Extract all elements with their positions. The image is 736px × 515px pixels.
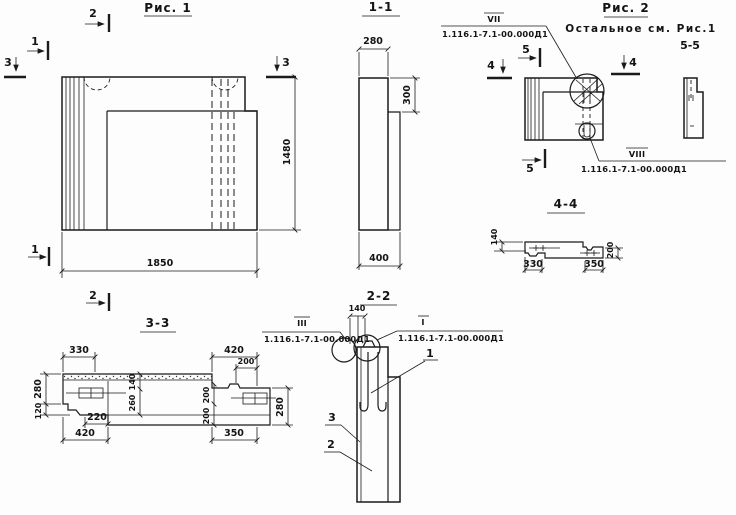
cut-marker-5-bottom: 5 xyxy=(526,162,534,175)
sec44-anchors xyxy=(533,245,597,256)
callout-vii-doc: 1.116.1-7.1-00.000Д1 xyxy=(442,29,548,39)
sec33-dim-bottom-right: 350 xyxy=(224,428,244,439)
sec44-dim-bottom-left: 330 xyxy=(523,259,543,270)
sec22-callout-i: I 1.116.1-7.1-00.000Д1 xyxy=(377,316,504,343)
sec11-rib xyxy=(388,112,400,230)
sec11-dimensions: 280 300 400 xyxy=(359,36,420,270)
sec22-callout-iii: III 1.116.1-7.1-00.000Д1 xyxy=(262,317,370,344)
sec33-dim-bottom-left: 420 xyxy=(75,428,95,439)
sec11-dim-step: 300 xyxy=(402,85,413,105)
sec22-title: 2-2 xyxy=(367,289,392,303)
part-label-1: 1 xyxy=(426,347,434,360)
callout-viii-doc: 1.116.1-7.1-00.000Д1 xyxy=(581,164,687,174)
section-2-2: 2-2 140 III 1.116.1-7.1-00.000Д1 I 1.116… xyxy=(262,289,504,502)
sec22-body xyxy=(332,335,400,502)
detail-circle-vii xyxy=(570,74,604,108)
section-4-4: 4-4 140 200 330 350 xyxy=(490,197,623,273)
part-label-2: 2 xyxy=(327,438,335,451)
sec33-dim-top-right: 420 xyxy=(224,345,244,356)
sec33-dim-top-right-inner: 200 xyxy=(238,357,255,366)
callout-vii-label: VII xyxy=(487,14,500,24)
section-1-1: 1-1 280 300 400 xyxy=(359,0,420,270)
fig2-callout-vii: VII 1.116.1-7.1-00.000Д1 xyxy=(441,13,577,79)
sec11-dim-top: 280 xyxy=(363,36,383,47)
fig1-dimensions: 1850 1480 xyxy=(62,77,301,278)
callout-i-doc: 1.116.1-7.1-00.000Д1 xyxy=(398,333,504,343)
sec33-dim-bottom-inner: 220 xyxy=(87,412,107,423)
callout-i-label: I xyxy=(421,317,424,327)
cut-marker-1-left: 1 xyxy=(31,35,39,48)
sec33-dim-left-upper: 280 xyxy=(33,379,44,399)
cut-marker-4-left: 4 xyxy=(487,59,495,72)
callout-iii-label: III xyxy=(297,318,307,328)
fig1-title: Рис. 1 xyxy=(144,1,191,15)
sec11-body xyxy=(359,78,388,230)
sec33-anchor-plates xyxy=(66,388,276,404)
fig2-section-markers: 5 4 4 5 xyxy=(487,43,640,175)
fig1-dim-height: 1480 xyxy=(282,138,293,165)
cut-marker-1-bottom: 1 xyxy=(31,243,39,256)
sec22-dim-top: 140 xyxy=(349,304,366,313)
sec33-dim-left-lower: 120 xyxy=(34,402,43,419)
cut-marker-4-right: 4 xyxy=(629,56,637,69)
part-label-3: 3 xyxy=(328,411,336,424)
cut-marker-2-top: 2 xyxy=(89,7,97,20)
fig1-dim-width: 1850 xyxy=(147,258,174,269)
sec33-dim-mid-upper: 140 xyxy=(128,373,137,390)
fig2-title: Рис. 2 xyxy=(602,1,649,15)
cut-marker-5-top: 5 xyxy=(522,43,530,56)
fig2-view: Рис. 2 Остальное см. Рис.1 5-5 VII 1.116… xyxy=(441,1,726,175)
lifting-socket-arc-left xyxy=(84,77,110,90)
sec11-dim-bottom: 400 xyxy=(369,253,389,264)
sec33-dim-mid-lower: 260 xyxy=(128,394,137,411)
sec33-title: 3-3 xyxy=(146,316,171,330)
loop-anchor-leg-right xyxy=(378,352,386,411)
sec11-title: 1-1 xyxy=(369,0,394,14)
cut-marker-3-left: 3 xyxy=(4,56,12,69)
callout-viii-label: VIII xyxy=(629,149,645,159)
sec33-dim-right: 280 xyxy=(275,397,286,417)
sec44-title: 4-4 xyxy=(554,197,579,211)
cut-marker-3-right: 3 xyxy=(282,56,290,69)
fig2-callout-viii: VIII 1.116.1-7.1-00.000Д1 xyxy=(581,138,726,174)
technical-drawing: Рис. 1 2 1 3 3 1 2 xyxy=(0,0,736,515)
sec44-dim-bottom-right: 350 xyxy=(584,259,604,270)
sec33-dimensions: 330 420 200 280 120 140 260 200 200 xyxy=(33,345,293,444)
cut-marker-2-bottom: 2 xyxy=(89,289,97,302)
sec33-dim-mid2-lower: 200 xyxy=(202,407,211,424)
fig2-block xyxy=(525,74,604,140)
sec44-body xyxy=(525,242,603,258)
sec33-facing-layer xyxy=(64,374,212,380)
lifting-socket-arc-right xyxy=(212,77,238,90)
fig1-panel-outline xyxy=(62,77,257,230)
fig2-view-5-5 xyxy=(684,78,703,138)
sec44-dim-right: 200 xyxy=(606,241,615,258)
fig2-view55-label: 5-5 xyxy=(680,39,700,52)
sec33-dim-top-left: 330 xyxy=(69,345,89,356)
section-3-3: 3-3 330 420 200 xyxy=(33,316,293,444)
sec33-dim-mid2-upper: 200 xyxy=(202,386,211,403)
sec44-dim-left: 140 xyxy=(490,228,499,245)
fig2-note: Остальное см. Рис.1 xyxy=(565,23,716,35)
blueprint-page: Рис. 1 2 1 3 3 1 2 xyxy=(0,0,736,515)
fig1-view: Рис. 1 2 1 3 3 1 2 xyxy=(4,1,301,311)
sec22-part-leaders: 1 3 2 xyxy=(324,347,438,471)
